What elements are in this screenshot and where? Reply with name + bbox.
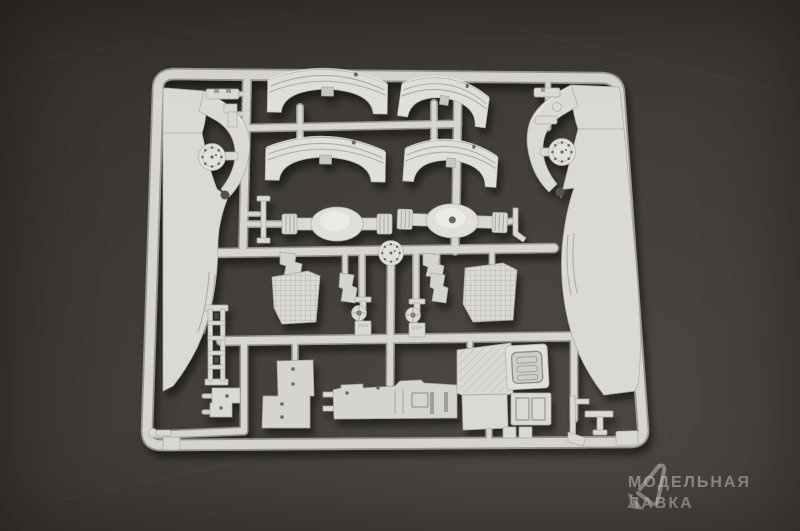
flag-part-bottom-right [568, 396, 589, 446]
axle-right [397, 202, 508, 240]
rod-part [257, 196, 270, 243]
sprue [147, 67, 643, 450]
small-bracket-bottom-left [210, 388, 240, 417]
photo-of-model-kit-sprue: МОДЕЛЬНАЯ ЛАВКА [0, 0, 800, 531]
fender-lower-left [265, 135, 386, 182]
small-box-bottom-left [163, 437, 180, 450]
hub-disc-center [379, 241, 404, 266]
hook-part [513, 208, 526, 242]
hub-disc-right [549, 139, 576, 166]
fender-lower-right [403, 136, 499, 187]
knob-part-bottom-left [149, 429, 172, 438]
window-frame-lower [511, 393, 551, 425]
textured-panel-right [463, 263, 517, 322]
window-frame-upper [505, 344, 549, 390]
stepped-panel [262, 360, 314, 428]
cab-tab-left [503, 427, 516, 438]
t-part-bottom-right [585, 411, 613, 435]
corner-panel-bottom-right [616, 431, 638, 446]
model-lavka-logo [628, 462, 670, 512]
steering-knuckle-right [406, 299, 426, 337]
textured-panel-left [272, 271, 320, 324]
watermark: МОДЕЛЬНАЯ ЛАВКА [628, 462, 798, 524]
ladder-frame-piece [205, 305, 228, 385]
cab-tab-right [519, 427, 532, 438]
hub-disc-left [199, 144, 226, 171]
sprue-photo-canvas [0, 0, 800, 531]
cab-floor-assembly [457, 343, 551, 438]
cab-floor-slab [457, 343, 513, 430]
angle-bracket-left [339, 273, 357, 303]
angle-bracket-right [430, 273, 448, 303]
axle-left [282, 207, 392, 241]
